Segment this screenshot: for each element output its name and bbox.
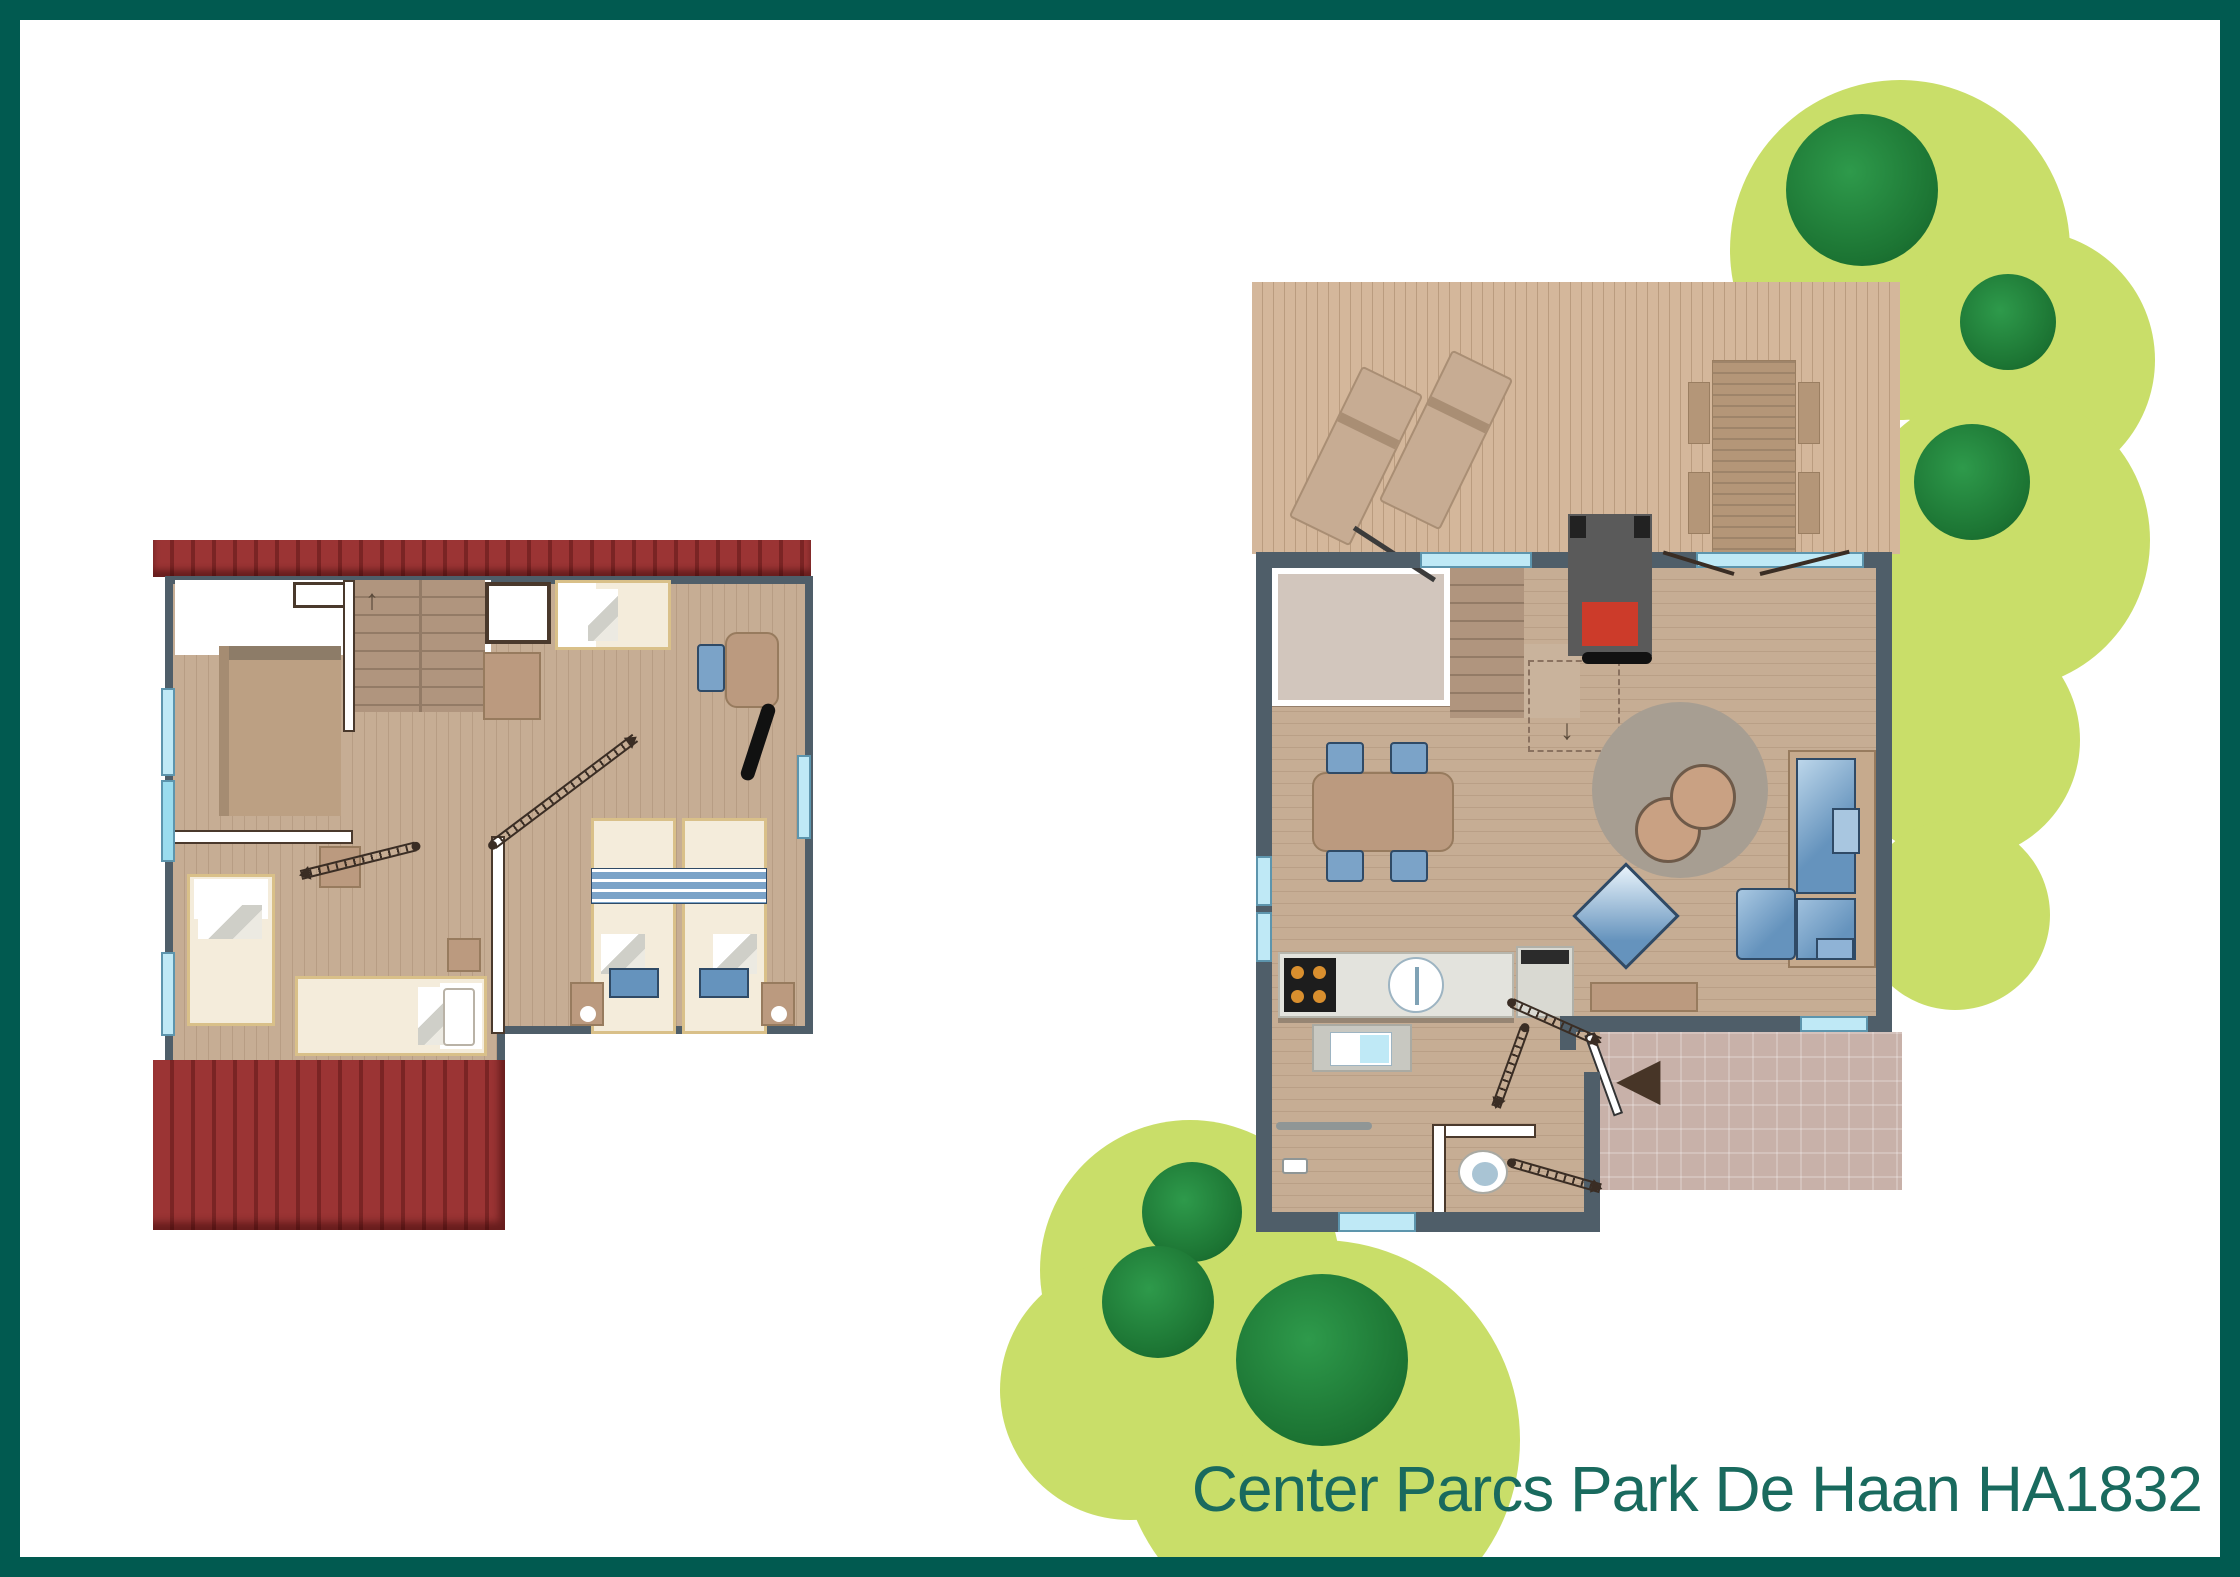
single-bed-left bbox=[187, 874, 275, 1026]
floorplan-page: ↑ bbox=[0, 0, 2240, 1577]
blanket-fold bbox=[198, 905, 262, 939]
dresser-small-2 bbox=[447, 938, 481, 972]
nightstand-right bbox=[761, 982, 795, 1026]
attic-bed bbox=[219, 646, 341, 816]
single-bed-top bbox=[555, 580, 671, 650]
stairs-down-arrow-icon: ↓ bbox=[1560, 716, 1574, 744]
ground-staircase bbox=[1450, 568, 1524, 718]
dining-chair-1 bbox=[1326, 742, 1364, 774]
towel-bar-icon bbox=[1276, 1122, 1372, 1130]
sink-unit-lower bbox=[1312, 1024, 1412, 1072]
tree-icon-top-2 bbox=[1960, 274, 2056, 370]
ottoman bbox=[1736, 888, 1796, 960]
picnic-bench-bl bbox=[1688, 472, 1710, 534]
bath-wall-h bbox=[1432, 1124, 1536, 1138]
window-left-2 bbox=[1256, 912, 1272, 962]
lounge-chair-bar bbox=[1427, 396, 1489, 433]
sofa-pillow bbox=[1832, 808, 1860, 854]
attic-partition-wall bbox=[343, 580, 355, 732]
double-bed bbox=[591, 818, 767, 1034]
sofa-seat-cushion bbox=[1816, 938, 1854, 960]
window-left-1 bbox=[1256, 856, 1272, 906]
house-wall-lower-right bbox=[1584, 1072, 1600, 1232]
dining-chair-3 bbox=[1326, 850, 1364, 882]
window-bottom-left bbox=[1338, 1212, 1416, 1232]
kitchen-counter bbox=[1278, 952, 1514, 1018]
upper-floor-plan: ↑ bbox=[153, 540, 813, 1230]
house-wall-bottom-left bbox=[1256, 1212, 1600, 1232]
window-right-1 bbox=[797, 755, 811, 839]
shower-tap-icon bbox=[1282, 1158, 1308, 1174]
tree-icon-top-3 bbox=[1914, 424, 2030, 540]
basin-water bbox=[1360, 1035, 1389, 1063]
dining-chair-2 bbox=[1390, 742, 1428, 774]
upper-wardrobe bbox=[483, 652, 541, 720]
window-left-3 bbox=[161, 952, 175, 1036]
faucet-icon bbox=[1415, 967, 1419, 1005]
stair-divider bbox=[419, 580, 422, 712]
desk-chair bbox=[697, 644, 725, 692]
window-bottom-right bbox=[1800, 1016, 1868, 1032]
lamp-icon bbox=[580, 1006, 596, 1022]
window-left-2 bbox=[161, 780, 175, 862]
stove-post-left bbox=[1570, 516, 1586, 538]
picnic-bench-tl bbox=[1688, 382, 1710, 444]
burner bbox=[1313, 990, 1326, 1003]
bedroom-partition-h bbox=[165, 830, 353, 844]
coffee-machine-icon bbox=[1521, 950, 1569, 964]
house-wall-right bbox=[1876, 552, 1892, 1032]
dining-chair-4 bbox=[1390, 850, 1428, 882]
tree-icon-top-1 bbox=[1786, 114, 1938, 266]
page-title: Center Parcs Park De Haan HA1832 bbox=[1192, 1452, 2202, 1526]
pouf-2 bbox=[1670, 764, 1736, 830]
blanket-fold bbox=[588, 589, 618, 641]
foot-cushion-left bbox=[609, 968, 659, 998]
tree-icon-bottom-3 bbox=[1236, 1274, 1408, 1446]
stove-post-right bbox=[1634, 516, 1650, 538]
stairs-up-arrow-icon: ↑ bbox=[365, 586, 379, 614]
firebox bbox=[1582, 602, 1638, 646]
burner bbox=[1291, 990, 1304, 1003]
dining-table bbox=[1312, 772, 1454, 852]
bed-runner bbox=[591, 868, 767, 904]
burner bbox=[1291, 966, 1304, 979]
stove-handle bbox=[1582, 652, 1652, 664]
storage-room bbox=[1272, 568, 1450, 706]
desk bbox=[725, 632, 779, 708]
coffee-table bbox=[1590, 982, 1698, 1012]
picnic-bench-tr bbox=[1798, 382, 1820, 444]
stove-icon bbox=[1284, 958, 1336, 1012]
picnic-bench-br bbox=[1798, 472, 1820, 534]
upper-bath-cabin bbox=[485, 582, 551, 644]
window-top-1 bbox=[1420, 552, 1532, 568]
stair-headroom-dashed bbox=[1528, 660, 1620, 752]
toilet-icon bbox=[1458, 1150, 1508, 1194]
toilet-bowl bbox=[1472, 1162, 1498, 1186]
entrance-arrow-icon: ◀ bbox=[1616, 1050, 1661, 1108]
nightstand-white bbox=[443, 988, 475, 1046]
ground-floor-plan: ↓ bbox=[1060, 60, 2180, 1340]
upper-roof-strip bbox=[153, 540, 811, 577]
upper-balcony-deck bbox=[153, 1060, 505, 1230]
mattress-right bbox=[682, 818, 767, 1034]
kitchen-sink-icon bbox=[1388, 957, 1444, 1013]
attic-bed-headboard bbox=[229, 646, 341, 660]
burner bbox=[1313, 966, 1326, 979]
lamp-icon bbox=[771, 1006, 787, 1022]
lounge-chair-bar bbox=[1337, 412, 1399, 449]
nightstand-left bbox=[570, 982, 604, 1026]
bedroom-partition-v bbox=[491, 836, 505, 1034]
fireplace-stove bbox=[1568, 514, 1652, 656]
tree-icon-bottom-2 bbox=[1102, 1246, 1214, 1358]
window-left-1 bbox=[161, 688, 175, 776]
foot-cushion-right bbox=[699, 968, 749, 998]
picnic-table bbox=[1712, 360, 1796, 572]
